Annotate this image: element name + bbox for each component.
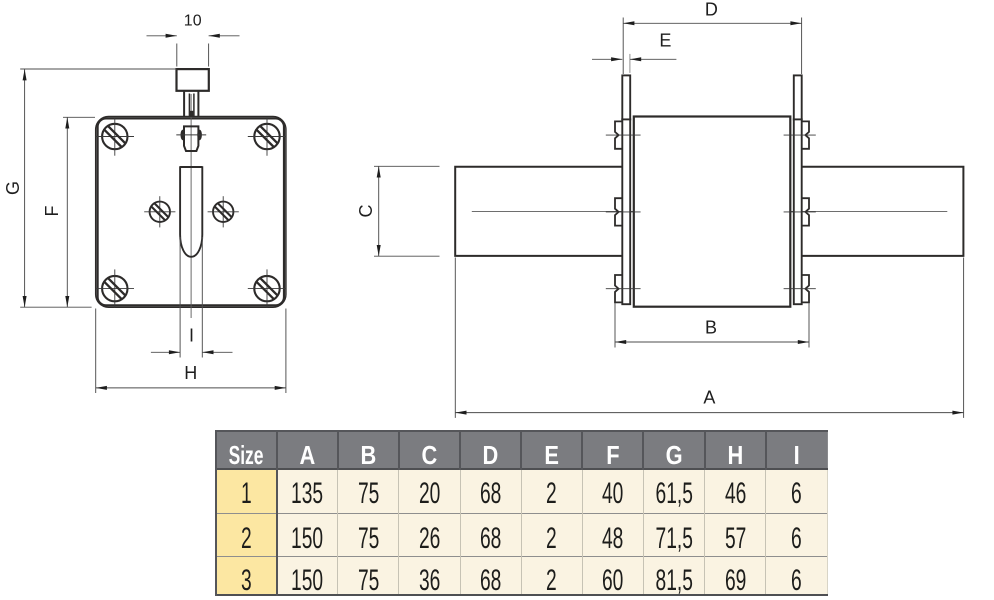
svg-text:I: I [189,326,194,346]
svg-text:A: A [703,388,715,408]
svg-text:B: B [705,318,717,338]
svg-text:H: H [184,363,197,383]
svg-text:E: E [659,31,671,51]
svg-text:C: C [356,205,376,218]
svg-text:F: F [42,206,62,217]
svg-text:D: D [705,0,718,20]
svg-text:10: 10 [184,13,202,30]
svg-text:G: G [3,181,23,195]
